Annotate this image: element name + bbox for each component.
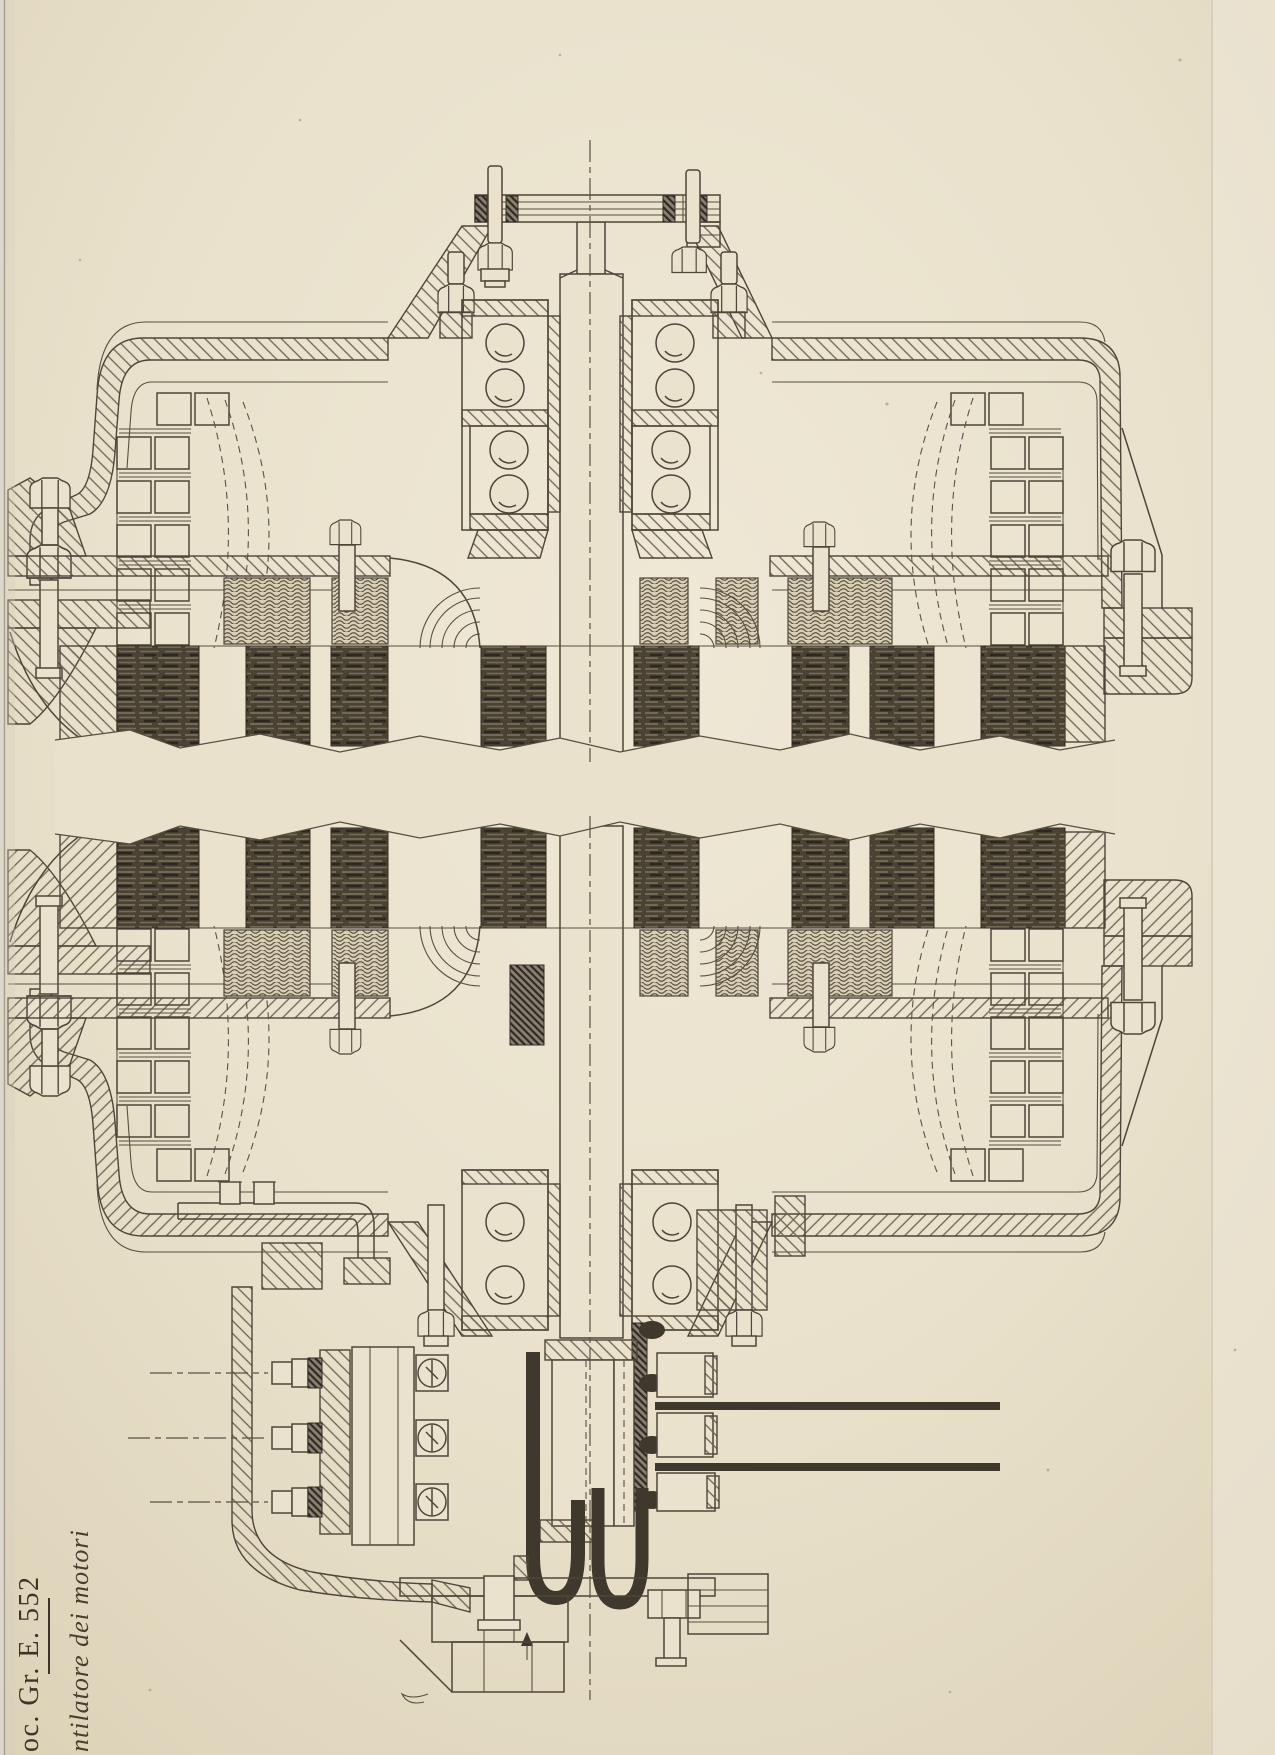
brush-studs xyxy=(272,1358,322,1517)
margin-reference-label: oc. Gr. E. 552 xyxy=(14,1575,45,1752)
brush-rod xyxy=(655,1463,1000,1471)
margin-caption-label: ntilatore dei motori xyxy=(65,1529,94,1752)
shaft-end xyxy=(540,1340,637,1542)
paper-fold-band xyxy=(1212,0,1275,1755)
shaft-upper xyxy=(560,217,623,760)
brush-rod xyxy=(655,1402,1000,1410)
shaft-lower xyxy=(560,826,623,1338)
scan-left-edge xyxy=(0,0,15,1755)
scanned-plate-page: oc. Gr. E. 552 ntilatore dei motori xyxy=(0,0,1275,1755)
diaphragm-strip-left xyxy=(8,556,390,576)
rotor-hub xyxy=(510,965,544,1045)
technical-drawing: oc. Gr. E. 552 ntilatore dei motori xyxy=(0,0,1275,1755)
